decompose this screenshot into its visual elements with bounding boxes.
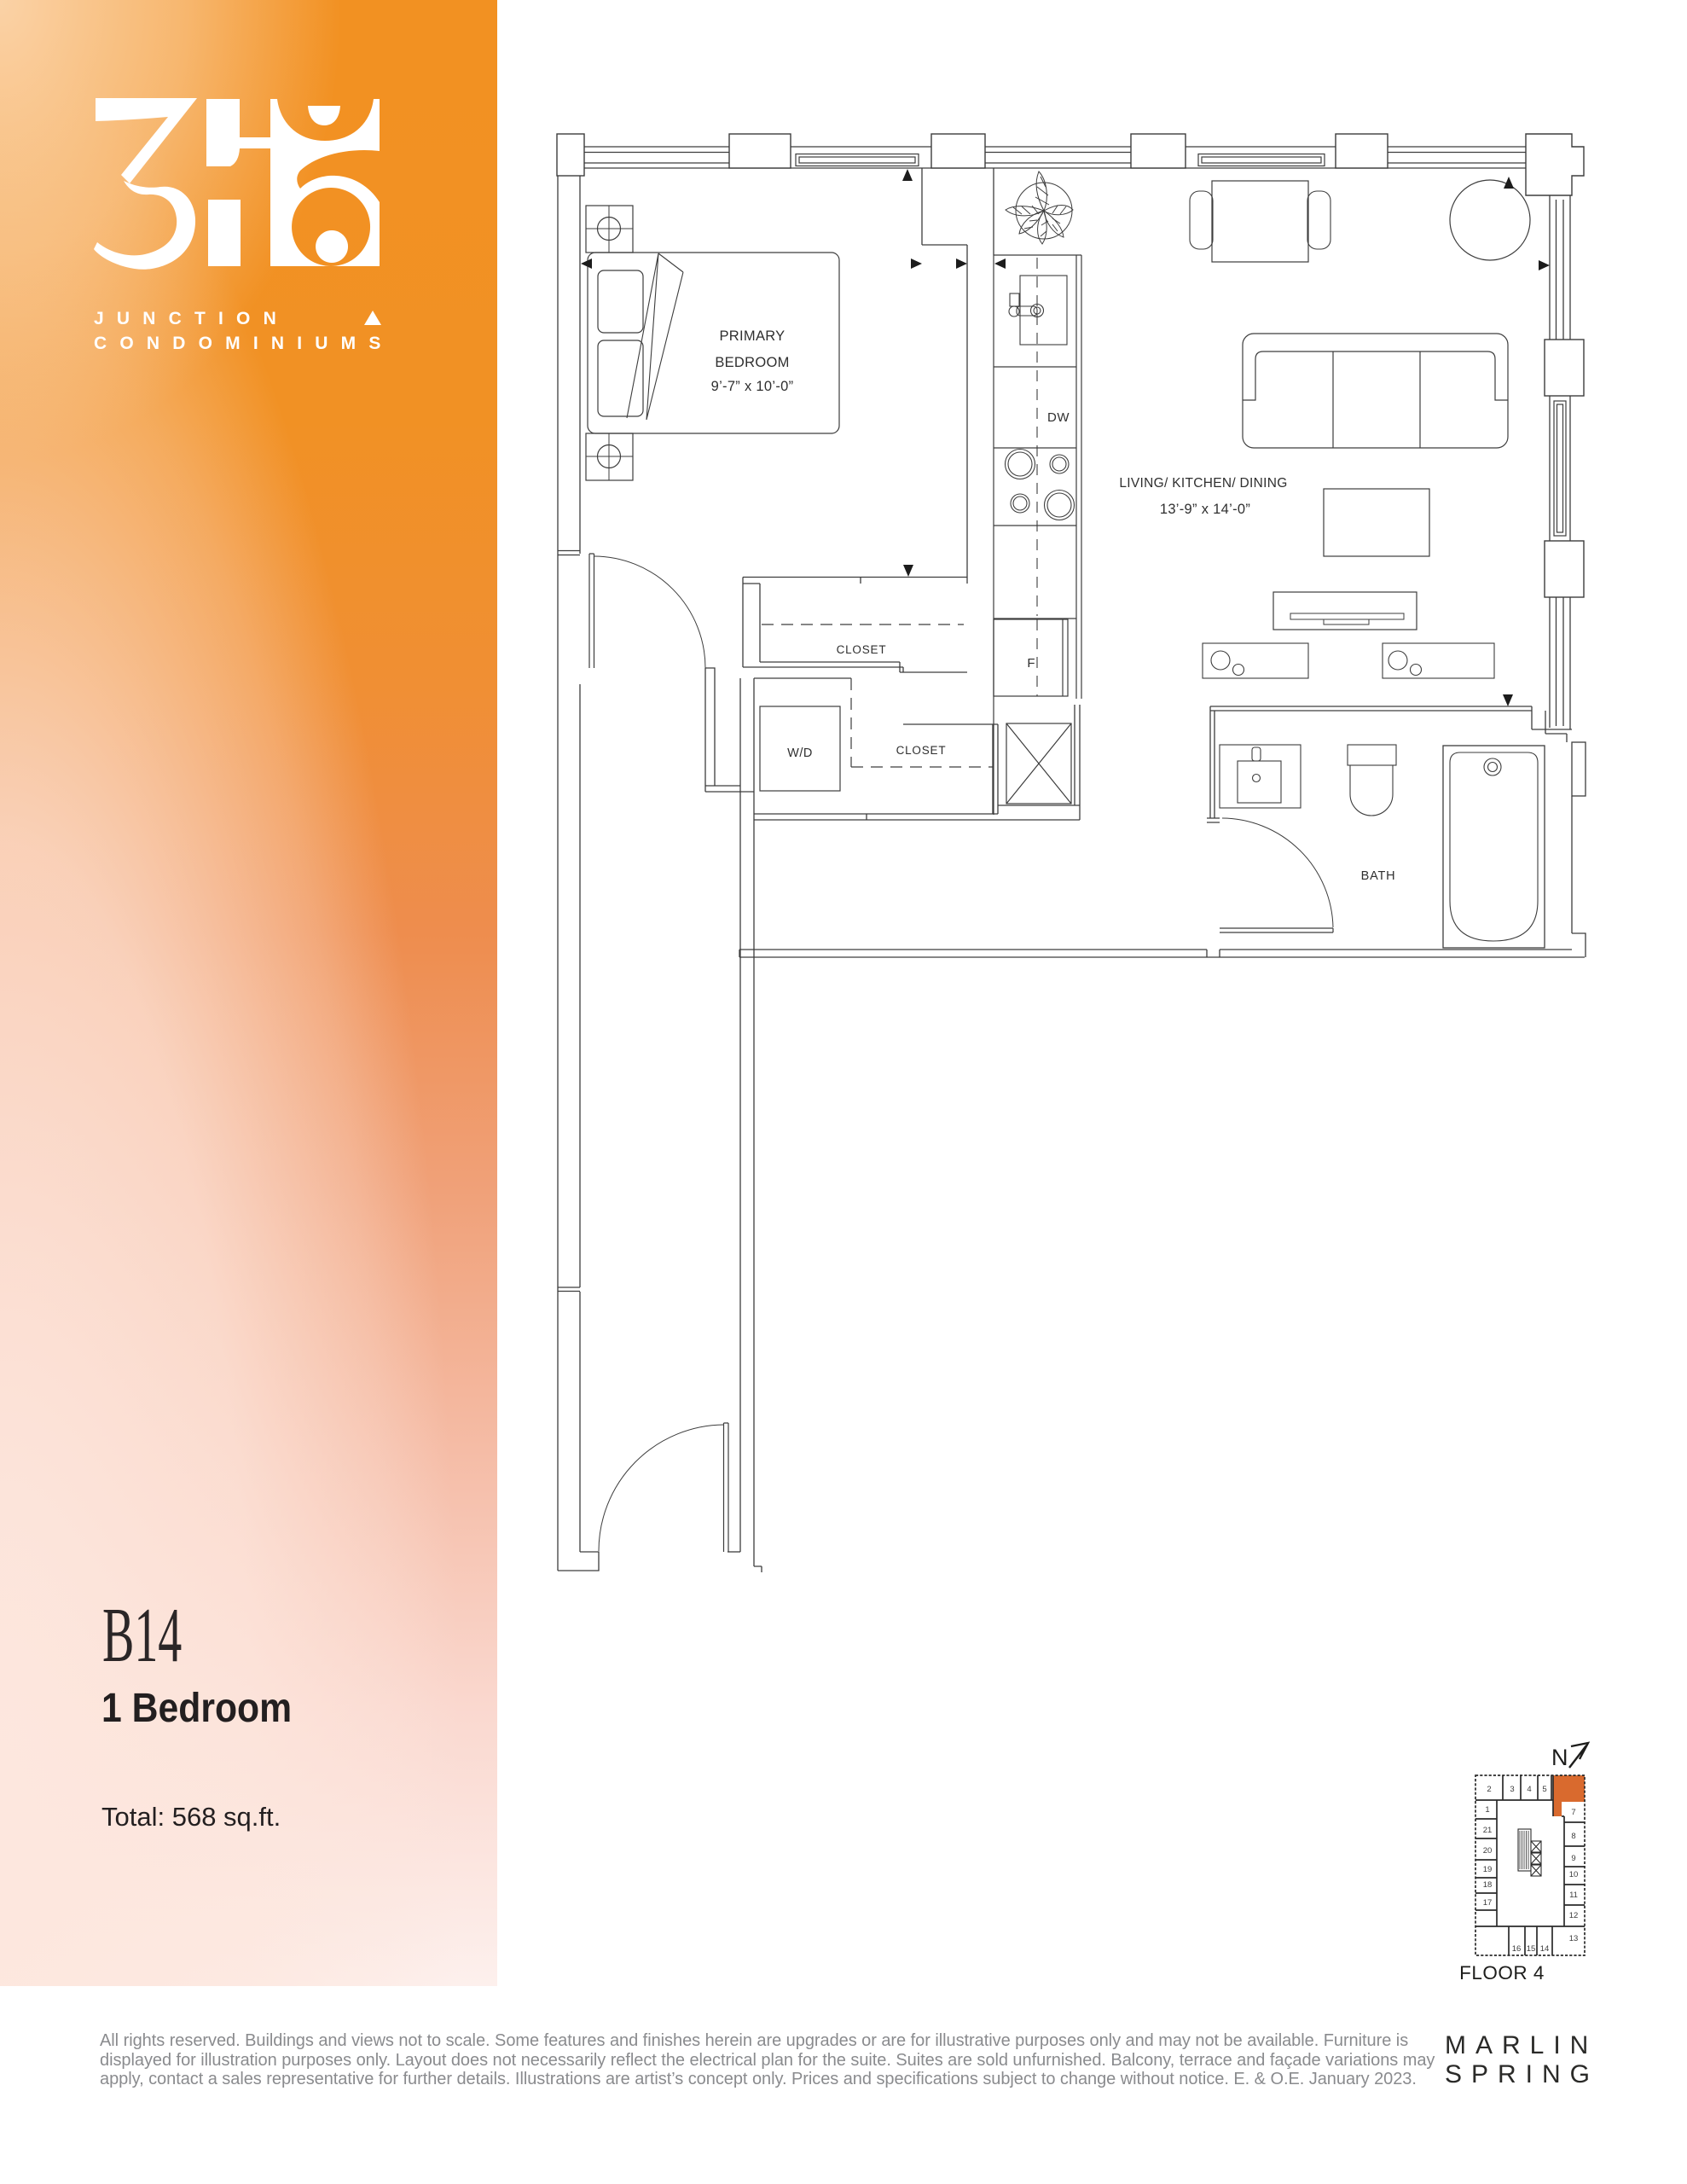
svg-text:FLOOR 4: FLOOR 4 bbox=[1459, 1962, 1545, 1984]
svg-text:21: 21 bbox=[1483, 1826, 1493, 1835]
svg-text:BATH: BATH bbox=[1361, 869, 1396, 883]
svg-text:5: 5 bbox=[1542, 1785, 1546, 1794]
svg-text:PRIMARY: PRIMARY bbox=[720, 328, 786, 344]
svg-text:17: 17 bbox=[1483, 1898, 1493, 1908]
svg-text:14: 14 bbox=[1540, 1944, 1550, 1954]
svg-text:13’-9” x 14’-0”: 13’-9” x 14’-0” bbox=[1160, 502, 1250, 517]
svg-text:LIVING/ KITCHEN/ DINING: LIVING/ KITCHEN/ DINING bbox=[1119, 476, 1287, 491]
svg-text:10: 10 bbox=[1569, 1870, 1579, 1879]
svg-text:F: F bbox=[1027, 656, 1035, 671]
svg-text:15: 15 bbox=[1527, 1944, 1536, 1954]
svg-text:CLOSET: CLOSET bbox=[837, 643, 887, 656]
svg-text:9’-7” x 10’-0”: 9’-7” x 10’-0” bbox=[711, 379, 794, 394]
svg-text:12: 12 bbox=[1569, 1911, 1579, 1920]
svg-text:DW: DW bbox=[1047, 410, 1070, 425]
svg-text:3: 3 bbox=[1510, 1785, 1514, 1794]
svg-text:9: 9 bbox=[1571, 1854, 1575, 1863]
svg-text:CLOSET: CLOSET bbox=[896, 744, 947, 757]
svg-text:20: 20 bbox=[1483, 1846, 1493, 1856]
svg-text:1: 1 bbox=[1485, 1805, 1489, 1815]
svg-text:19: 19 bbox=[1483, 1865, 1493, 1874]
svg-text:BEDROOM: BEDROOM bbox=[715, 355, 789, 370]
svg-text:11: 11 bbox=[1569, 1891, 1578, 1900]
svg-text:16: 16 bbox=[1512, 1944, 1522, 1954]
svg-text:18: 18 bbox=[1483, 1880, 1493, 1890]
svg-text:8: 8 bbox=[1571, 1832, 1575, 1841]
svg-text:13: 13 bbox=[1569, 1934, 1579, 1943]
svg-text:7: 7 bbox=[1571, 1808, 1575, 1817]
svg-text:W/D: W/D bbox=[787, 746, 813, 760]
svg-text:2: 2 bbox=[1487, 1785, 1491, 1794]
svg-text:N: N bbox=[1551, 1745, 1568, 1770]
svg-text:4: 4 bbox=[1527, 1785, 1531, 1794]
